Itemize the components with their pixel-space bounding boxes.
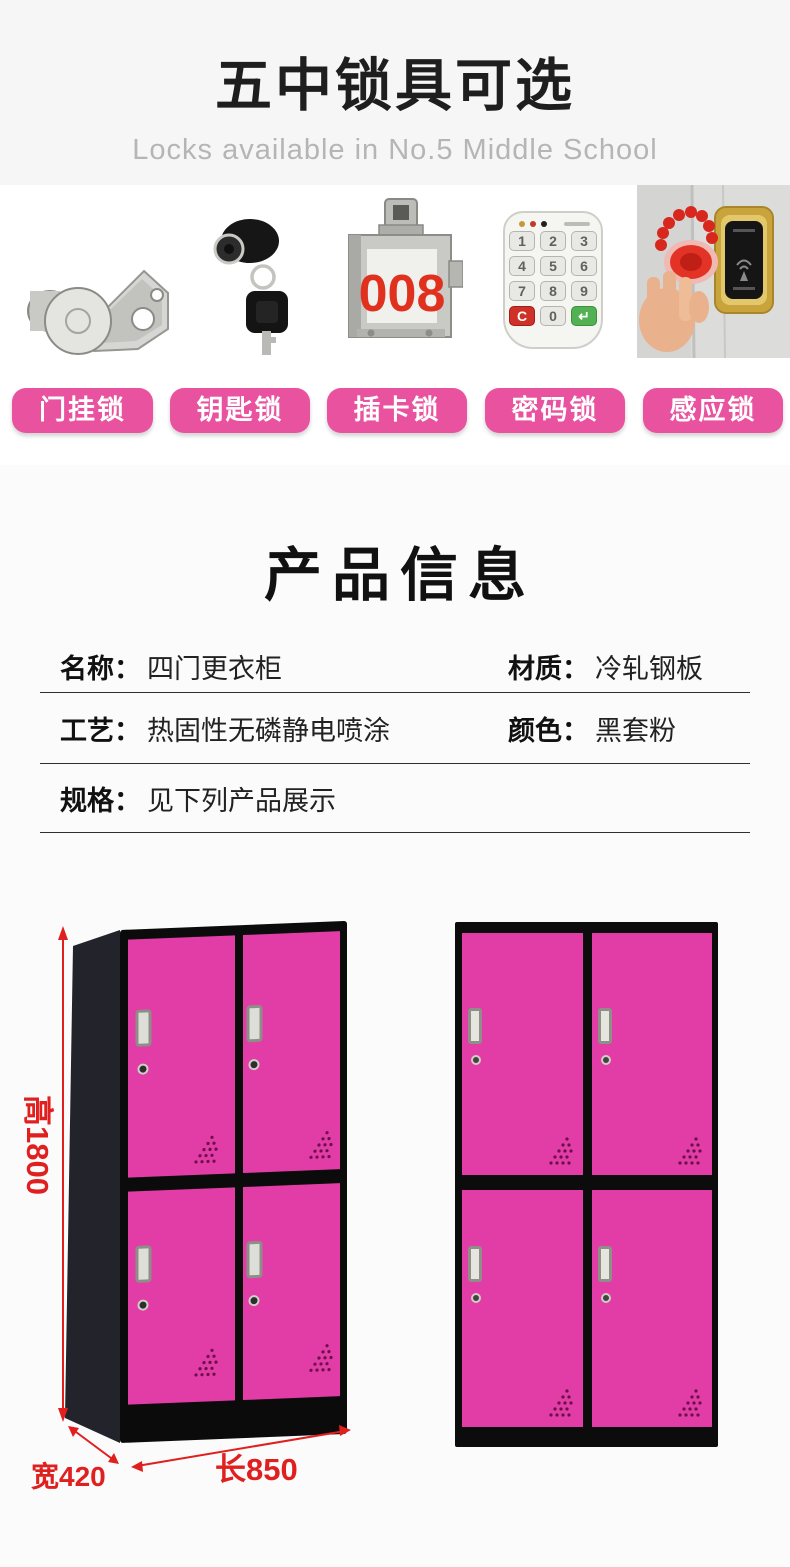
door-keyhole <box>471 1293 481 1303</box>
info-label: 规格： <box>60 779 141 818</box>
info-label: 工艺： <box>60 709 141 748</box>
info-label: 颜色： <box>508 709 589 748</box>
right-locker-image <box>455 922 718 1447</box>
keypad-key-6: 6 <box>571 256 597 276</box>
keypad-key-7: 7 <box>509 281 535 301</box>
door-handle <box>468 1246 482 1282</box>
locker-door-bottom-right <box>592 1190 712 1427</box>
page-title: 五中锁具可选 <box>0 0 790 122</box>
height-dimension-label: 高1800 <box>20 1095 55 1195</box>
door-vent <box>674 1131 704 1167</box>
door-vent <box>545 1131 575 1167</box>
info-cell-color: 颜色： 黑套粉 <box>508 709 750 748</box>
keypad-indicator-dots <box>519 221 601 227</box>
hanging-lock-photo <box>16 241 176 364</box>
locks-section: 008 1 2 3 4 5 6 7 8 9 C <box>0 185 790 465</box>
product-detail-page: 五中锁具可选 Locks available in No.5 Middle Sc… <box>0 0 790 1567</box>
info-label: 名称： <box>60 647 141 686</box>
keypad-key-0: 0 <box>540 306 566 326</box>
header-section: 五中锁具可选 Locks available in No.5 Middle Sc… <box>0 0 790 185</box>
card-lock-photo: 008 <box>337 195 463 352</box>
door-keyhole <box>601 1055 611 1065</box>
password-lock-photo: 1 2 3 4 5 6 7 8 9 C 0 ↵ <box>503 211 603 349</box>
table-row: 工艺： 热固性无磷静电喷涂 颜色： 黑套粉 <box>40 693 750 764</box>
button-key-lock[interactable]: 钥匙锁 <box>170 388 310 433</box>
button-induction-lock[interactable]: 感应锁 <box>643 388 783 433</box>
table-row: 名称： 四门更衣柜 材质： 冷轧钢板 <box>40 640 750 693</box>
keypad-key-9: 9 <box>571 281 597 301</box>
info-value: 见下列产品展示 <box>147 779 336 818</box>
info-cell-process: 工艺： 热固性无磷静电喷涂 <box>40 709 508 748</box>
rfid-lock-icon <box>637 185 790 358</box>
card-lock-number: 008 <box>359 265 446 323</box>
card-lock-icon: 008 <box>337 195 463 347</box>
info-cell-name: 名称： 四门更衣柜 <box>40 647 508 686</box>
button-hanging-lock[interactable]: 门挂锁 <box>12 388 153 433</box>
arrowhead-up <box>58 926 68 940</box>
locker-front-face <box>120 921 347 1443</box>
locker-side-panel <box>65 930 120 1443</box>
door-vent <box>545 1383 575 1419</box>
product-info-title: 产品信息 <box>0 528 790 612</box>
door-handle <box>598 1008 612 1044</box>
keypad-key-4: 4 <box>509 256 535 276</box>
keypad-keys: 1 2 3 4 5 6 7 8 9 C 0 ↵ <box>505 231 601 326</box>
product-info-section: 产品信息 名称： 四门更衣柜 材质： 冷轧钢板 工艺： 热固性无磷静电喷涂 颜色 <box>0 465 790 1567</box>
door-handle <box>598 1246 612 1282</box>
locker-door-bottom-left <box>462 1190 583 1427</box>
door-keyhole <box>601 1293 611 1303</box>
keypad-key-8: 8 <box>540 281 566 301</box>
width-dimension-label: 宽420 <box>31 1460 106 1492</box>
keypad-key-clear: C <box>509 306 535 326</box>
door-vent <box>674 1383 704 1419</box>
keypad-key-enter: ↵ <box>571 306 597 326</box>
product-info-table: 名称： 四门更衣柜 材质： 冷轧钢板 工艺： 热固性无磷静电喷涂 颜色： 黑套粉 <box>40 640 750 833</box>
cam-lock-icon <box>16 241 176 359</box>
door-handle <box>468 1008 482 1044</box>
keypad-key-5: 5 <box>540 256 566 276</box>
locker-door-top-right <box>592 933 712 1175</box>
left-locker-image: 高1800 宽420 长850 <box>15 920 375 1505</box>
keypad-key-3: 3 <box>571 231 597 251</box>
page-subtitle: Locks available in No.5 Middle School <box>0 134 790 167</box>
info-cell-spec: 规格： 见下列产品展示 <box>40 779 750 818</box>
door-keyhole <box>471 1055 481 1065</box>
info-value: 热固性无磷静电喷涂 <box>147 709 390 748</box>
key-lock-photo <box>200 207 318 360</box>
keys-icon <box>200 207 318 355</box>
keypad-key-1: 1 <box>509 231 535 251</box>
button-card-lock[interactable]: 插卡锁 <box>327 388 467 433</box>
button-password-lock[interactable]: 密码锁 <box>485 388 625 433</box>
table-row: 规格： 见下列产品展示 <box>40 764 750 833</box>
info-value: 四门更衣柜 <box>147 647 282 686</box>
induction-lock-photo <box>637 185 790 363</box>
info-value: 冷轧钢板 <box>595 647 703 686</box>
keypad-key-2: 2 <box>540 231 566 251</box>
length-dimension-label: 长850 <box>215 1452 298 1487</box>
locker-door-top-left <box>462 933 583 1175</box>
info-cell-material: 材质： 冷轧钢板 <box>508 647 750 686</box>
info-value: 黑套粉 <box>595 709 676 748</box>
info-label: 材质： <box>508 647 589 686</box>
